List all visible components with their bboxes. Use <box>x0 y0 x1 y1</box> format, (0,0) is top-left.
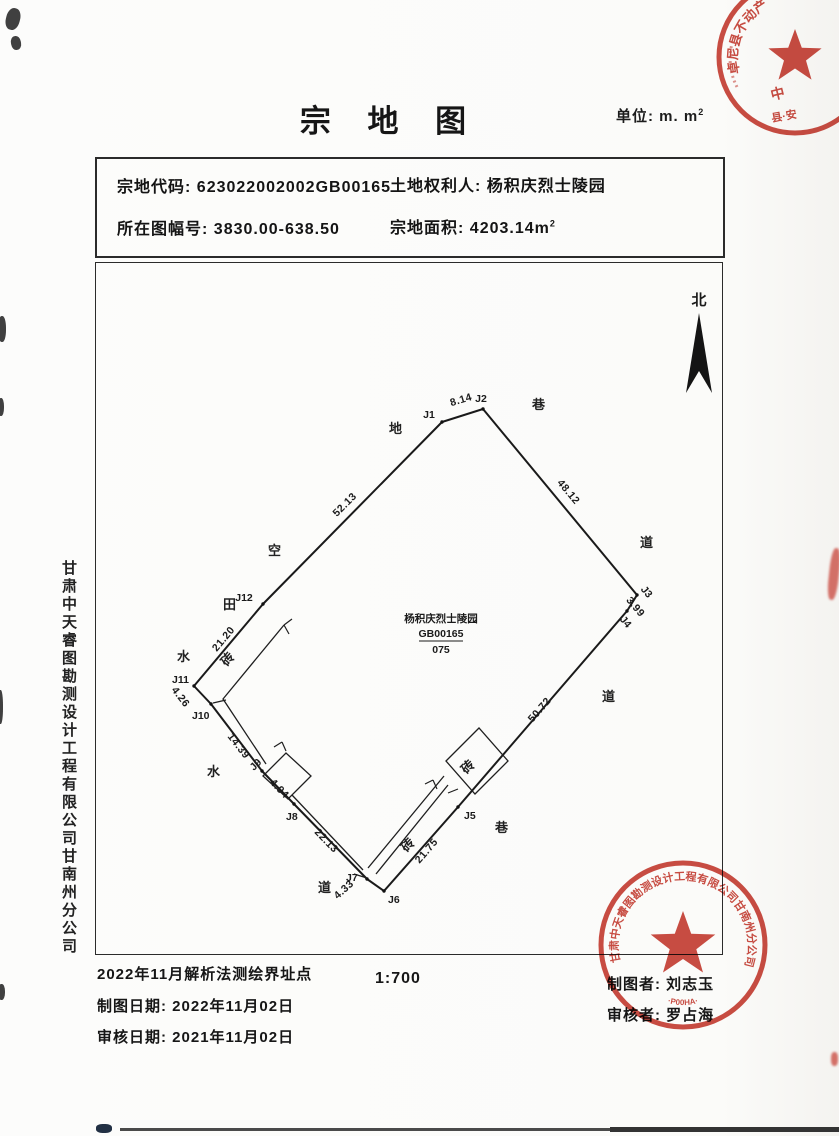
seal-script-text: 县·安 <box>770 107 798 125</box>
distance-j12-j1: 52.13 <box>330 490 359 519</box>
distance-j5-j6: 21.75 <box>413 836 441 866</box>
draw-date-label: 制图日期: <box>97 998 167 1015</box>
parcel-code-label: 宗地代码: <box>117 179 191 196</box>
area-row: 宗地面积: 4203.14m2 <box>390 214 556 238</box>
sheet-row: 所在图幅号: 3830.00-638.50 <box>117 215 340 239</box>
landuse-kong: 空 <box>268 543 281 558</box>
parcel-info-box: 宗地代码: 623022002002GB00165 土地权利人: 杨积庆烈士陵园… <box>95 157 725 258</box>
wall-tick-marks <box>213 619 458 878</box>
parcel-boundary <box>194 409 637 891</box>
scan-mark <box>0 398 4 416</box>
point-label-j3: J3 <box>638 584 655 601</box>
landuse-tian: 田 <box>223 597 236 612</box>
point-label-j5: J5 <box>464 810 476 822</box>
draw-date-row: 制图日期: 2022年11月02日 <box>97 995 294 1016</box>
north-label: 北 <box>691 292 706 309</box>
landuse-dao-southeast: 道 <box>602 689 615 704</box>
landuse-dao-southwest: 道 <box>318 880 331 895</box>
seal-star-icon <box>768 29 821 80</box>
scan-mark <box>10 35 22 51</box>
map-scale: 1:700 <box>375 970 421 988</box>
scan-mark <box>0 690 3 724</box>
scan-mark <box>0 984 5 1000</box>
scanned-parcel-map-page: 宗 地 图 单位: m. m2 宗地代码: 623022002002GB0016… <box>0 0 839 1136</box>
seal-star-icon <box>651 911 716 973</box>
wall-material-zhuan-south: 砖 <box>398 835 418 855</box>
scan-edge-line <box>610 1127 839 1132</box>
area-label: 宗地面积: <box>390 220 464 237</box>
distance-j2-j3: 48.12 <box>554 477 582 507</box>
landuse-shui-west: 水 <box>177 649 191 664</box>
registration-seal: 卓尼县不动产 中 县·安 <box>654 0 839 152</box>
wall-lines <box>223 625 448 874</box>
point-label-j12: J12 <box>235 592 253 604</box>
distance-j4-j5: 50.72 <box>526 695 554 725</box>
landuse-xiang-north: 巷 <box>531 397 546 412</box>
building-material-zhuan: 砖 <box>458 757 478 777</box>
point-label-j1: J1 <box>423 409 435 421</box>
landuse-shui-southwest: 水 <box>207 764 221 779</box>
landuse-xiang-south: 巷 <box>494 820 509 835</box>
wall-material-zhuan-west: 砖 <box>218 649 238 669</box>
parcel-center-number: 075 <box>432 644 450 656</box>
scan-blob <box>96 1124 112 1133</box>
north-arrow-icon <box>686 313 712 393</box>
landuse-di: 地 <box>389 421 402 436</box>
scan-mark <box>4 7 23 32</box>
seal-inner-char: 中 <box>769 84 786 103</box>
owner-value: 杨积庆烈士陵园 <box>487 178 606 195</box>
landuse-dao-east: 道 <box>640 535 653 550</box>
red-ink-bleed <box>826 548 839 601</box>
sheet-label: 所在图幅号: <box>117 221 208 238</box>
area-value: 4203.14m <box>470 220 550 237</box>
point-label-j4: J4 <box>617 614 634 631</box>
seal-code-text: ·P00HA· <box>667 996 699 1007</box>
area-superscript: 2 <box>550 219 556 229</box>
distance-j1-j2: 8.14 <box>449 391 474 409</box>
parcel-code-value: 623022002002GB00165 <box>197 179 391 196</box>
parcel-center-code: GB00165 <box>419 628 464 640</box>
point-label-j8: J8 <box>286 811 298 823</box>
company-seal: 甘肃中天睿图勘测设计工程有限公司甘南州分公司 ·P00HA· <box>583 845 783 1045</box>
point-label-j11: J11 <box>172 674 189 686</box>
owner-row: 土地权利人: 杨积庆烈士陵园 <box>390 172 606 196</box>
review-date-value: 2021年11月02日 <box>172 1029 294 1046</box>
distance-j10-j11: 4.26 <box>169 685 192 710</box>
draw-date-value: 2022年11月02日 <box>172 998 294 1015</box>
review-date-label: 审核日期: <box>97 1029 167 1046</box>
boundary-point-markers <box>192 407 638 892</box>
parcel-code-row: 宗地代码: 623022002002GB00165 <box>117 173 391 197</box>
survey-method-note: 2022年11月解析法测绘界址点 <box>97 963 312 984</box>
red-ink-bleed <box>831 1052 838 1066</box>
point-label-j10: J10 <box>192 710 210 722</box>
point-label-j6: J6 <box>388 894 400 906</box>
sheet-value: 3830.00-638.50 <box>214 221 340 238</box>
scan-mark <box>0 316 6 342</box>
owner-label: 土地权利人: <box>390 178 481 195</box>
surveyor-company-vertical: 甘肃中天睿图勘测设计工程有限公司甘南州分公司 <box>58 560 79 960</box>
parcel-center-name: 杨积庆烈士陵园 <box>404 612 478 625</box>
review-date-row: 审核日期: 2021年11月02日 <box>97 1026 294 1047</box>
point-label-j2: J2 <box>475 393 487 405</box>
